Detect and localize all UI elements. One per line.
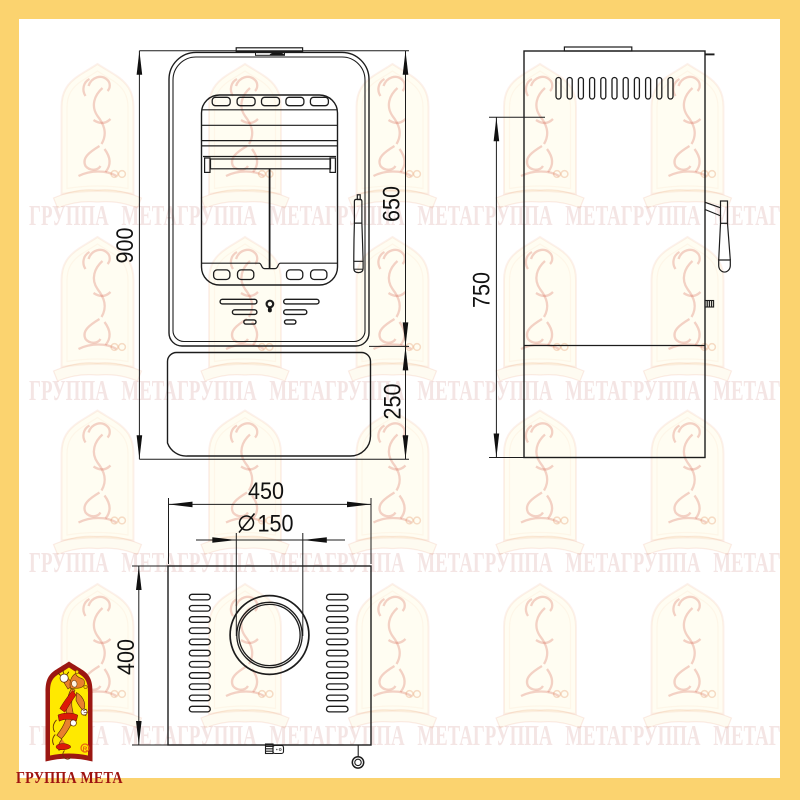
svg-text:400: 400 xyxy=(113,639,140,675)
svg-text:750: 750 xyxy=(468,272,495,308)
svg-text:250: 250 xyxy=(380,384,407,420)
svg-text:450: 450 xyxy=(248,478,284,505)
svg-text:650: 650 xyxy=(379,186,406,222)
svg-text:900: 900 xyxy=(112,228,139,264)
svg-text:150: 150 xyxy=(258,511,294,538)
